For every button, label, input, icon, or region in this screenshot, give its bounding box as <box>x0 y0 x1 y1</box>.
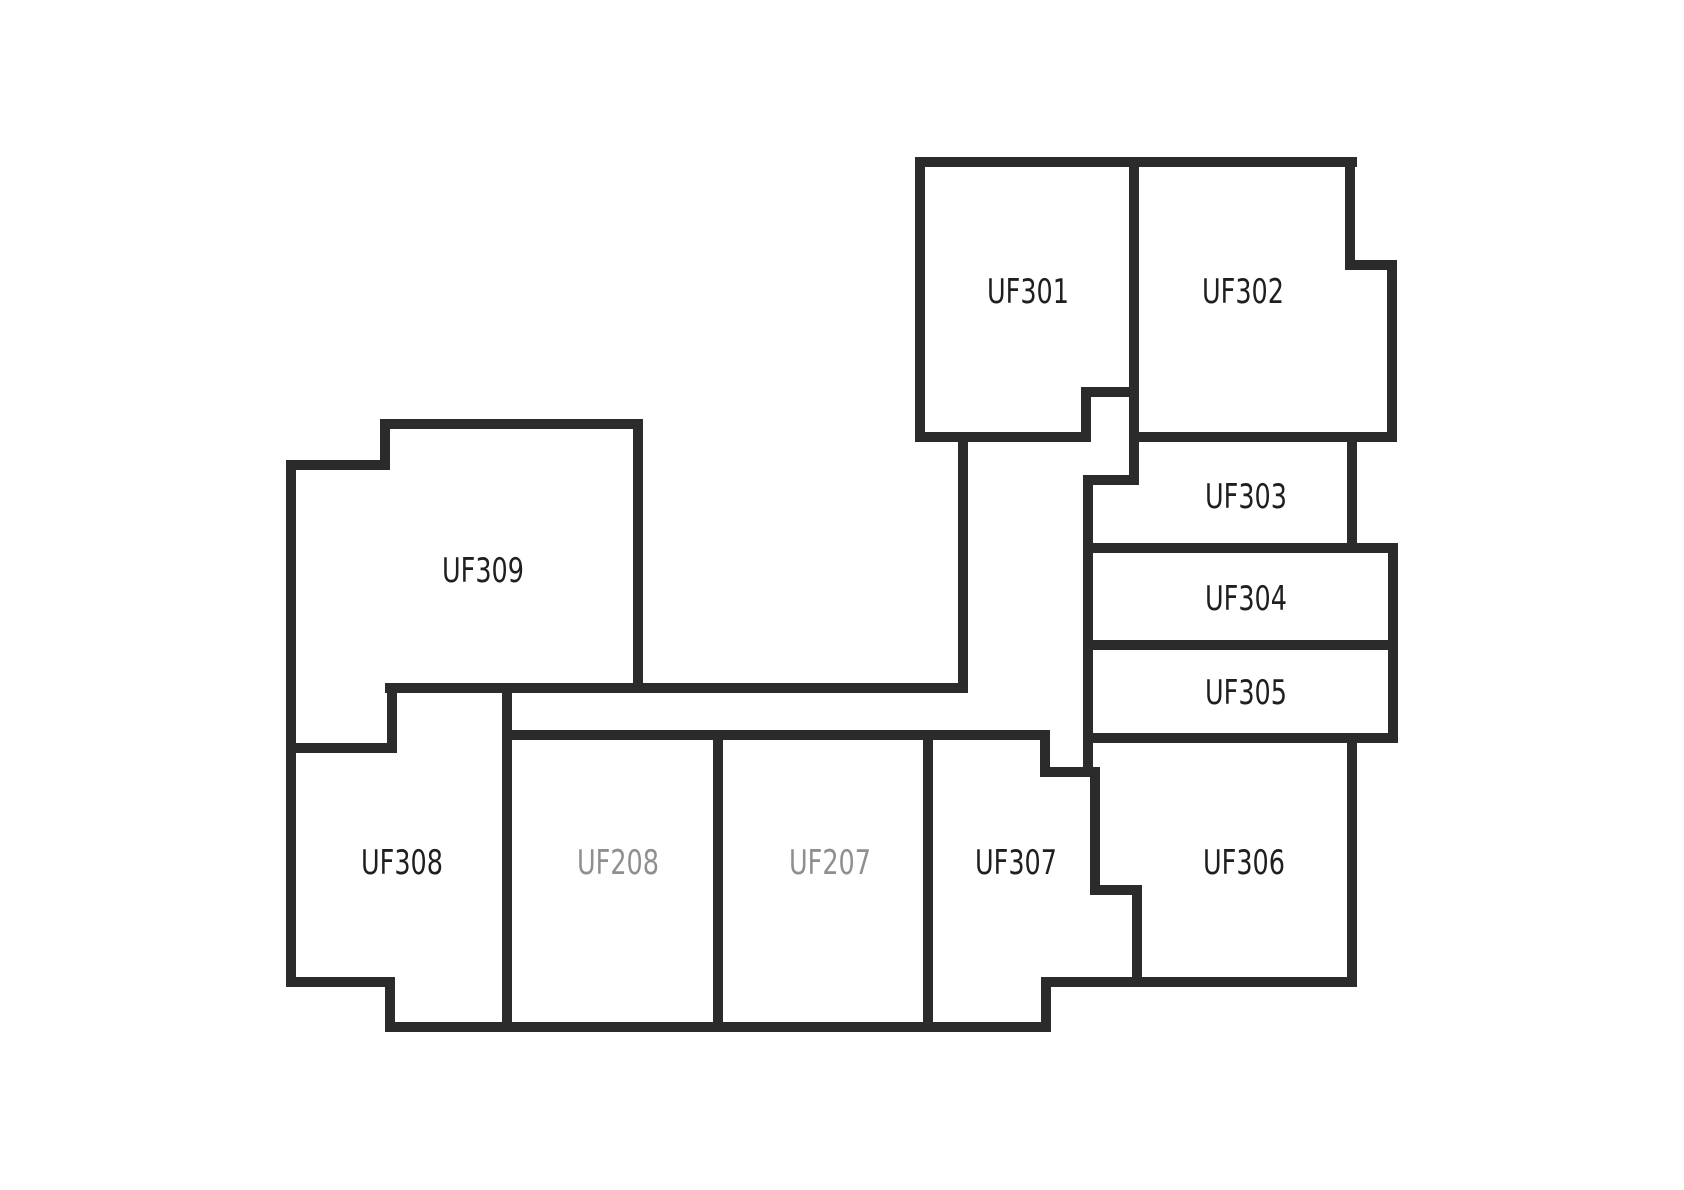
room-label-uf308: UF308 <box>361 843 443 883</box>
room-label-uf306: UF306 <box>1203 843 1285 883</box>
room-label-uf309: UF309 <box>442 551 524 591</box>
room-label-uf307: UF307 <box>975 843 1057 883</box>
room-labels: UF301UF302UF303UF304UF305UF306UF307UF207… <box>361 272 1287 883</box>
room-label-uf207: UF207 <box>789 843 871 883</box>
room-label-uf302: UF302 <box>1202 272 1284 312</box>
room-label-uf304: UF304 <box>1205 579 1287 619</box>
room-label-uf208: UF208 <box>577 843 659 883</box>
room-label-uf301: UF301 <box>987 272 1069 312</box>
room-label-uf303: UF303 <box>1205 477 1287 517</box>
floorplan-drawing: UF301UF302UF303UF304UF305UF306UF307UF207… <box>0 0 1684 1190</box>
floorplan-page: UF301UF302UF303UF304UF305UF306UF307UF207… <box>0 0 1684 1190</box>
room-label-uf305: UF305 <box>1205 673 1287 713</box>
